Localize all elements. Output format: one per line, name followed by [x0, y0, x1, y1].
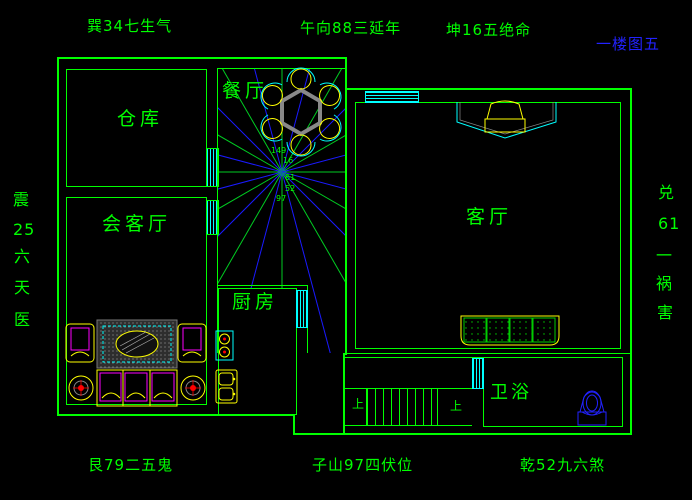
wall-band-top — [345, 357, 483, 358]
label-bottom-left: 艮79二五鬼 — [88, 458, 173, 473]
living-room-sofa — [458, 314, 562, 348]
reception-door-window — [206, 200, 219, 235]
wall-outer-drop — [293, 414, 295, 435]
wall-outer-top-left — [57, 57, 347, 59]
kitchen-right-window — [296, 290, 308, 328]
label-left-zhen: 震 — [13, 192, 30, 208]
label-left-tian: 天 — [14, 280, 31, 296]
label-left-25: 25 — [13, 222, 35, 238]
label-top-center: 午向88三延年 — [300, 21, 401, 36]
label-bottom-right: 乾52九六煞 — [520, 458, 605, 473]
room-label-living: 客厅 — [466, 208, 512, 227]
reception-sofa-set — [64, 318, 210, 410]
stairs-right-window — [472, 358, 484, 389]
compass-number-16: 16 — [283, 157, 293, 165]
toilet — [575, 385, 609, 427]
room-label-dining: 餐厅 — [222, 82, 268, 101]
wall-outer-right — [630, 88, 632, 435]
wall-stairs-left — [343, 353, 345, 433]
wall-kitchen-top-outer — [217, 285, 307, 286]
tv-and-stand — [455, 100, 559, 145]
room-label-warehouse: 仓库 — [117, 110, 163, 129]
label-right-huo: 祸 — [656, 276, 673, 292]
wall-outer-left — [57, 57, 59, 416]
wall-living-bottom-outer — [345, 353, 630, 354]
compass-number-149: 149 — [271, 147, 286, 155]
floor-title: 一楼图五 — [596, 37, 660, 52]
kitchen-stove — [215, 330, 237, 362]
wall-stairs-bottom — [345, 425, 472, 426]
label-bottom-center: 子山97四伏位 — [312, 458, 413, 473]
dining-table-set — [255, 68, 347, 158]
compass-number-97: 97 — [276, 195, 286, 203]
warehouse-door-window — [206, 148, 219, 187]
floor-plan-canvas[interactable]: 巽34七生气 午向88三延年 坤16五绝命 一楼图五 艮79二五鬼 子山97四伏… — [0, 0, 692, 500]
living-top-window — [365, 91, 419, 103]
room-label-kitchen: 厨房 — [232, 293, 278, 312]
label-right-61: 61 — [658, 216, 680, 232]
room-label-bathroom: 卫浴 — [490, 384, 532, 402]
label-right-dui: 兑 — [658, 185, 675, 201]
stairs-up-label-left: 上 — [352, 398, 364, 410]
room-label-reception: 会客厅 — [102, 215, 171, 234]
stairs-up-label-right: 上 — [450, 400, 462, 412]
wall-outer-bottom-right — [293, 433, 632, 435]
label-right-hai: 害 — [657, 305, 674, 321]
kitchen-sink — [215, 369, 239, 405]
compass-number-61: 61 — [285, 174, 295, 182]
label-left-liu: 六 — [14, 249, 31, 265]
label-top-left: 巽34七生气 — [87, 19, 172, 34]
label-top-right: 坤16五绝命 — [446, 23, 531, 38]
label-left-yi: 医 — [14, 312, 31, 328]
wall-outer-top-right — [345, 88, 632, 90]
compass-number-52: 52 — [285, 185, 295, 193]
label-right-yi: 一 — [656, 248, 673, 264]
staircase-treads — [366, 389, 438, 425]
